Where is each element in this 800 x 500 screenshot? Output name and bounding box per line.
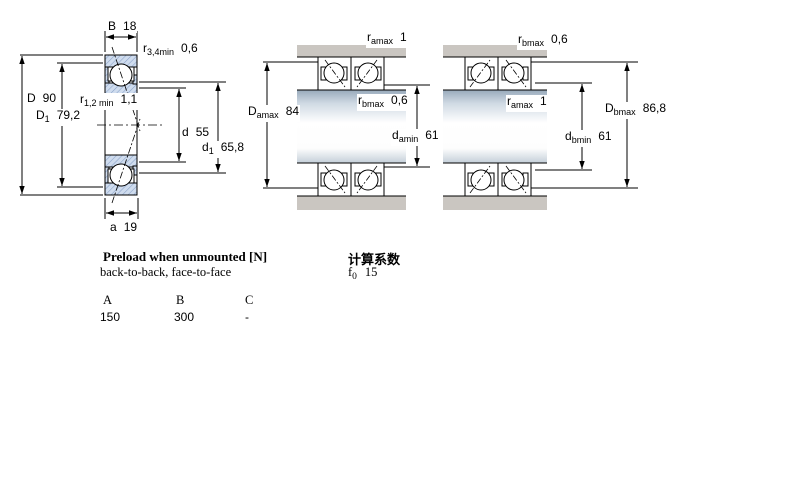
dim-label-d: d55 [181, 126, 210, 139]
dim-label-damin: damin61 [391, 129, 440, 146]
dim-label-D: D90 [26, 92, 57, 105]
dim-label-a: a19 [109, 221, 138, 234]
preload-value-c: - [245, 310, 249, 324]
dim-label-rbmax-b: rbmax0,6 [517, 33, 569, 50]
preload-value-b: 300 [174, 310, 194, 324]
dim-label-r12: r1,2 min1,1 [79, 93, 138, 110]
dim-label-Dbmax: Dbmax86,8 [604, 102, 667, 119]
dim-label-ramax-a: ramax1 [366, 31, 408, 48]
dim-label-ramax-b: ramax1 [506, 95, 548, 112]
preload-col-c-header: C [245, 293, 253, 308]
dim-label-rbmax-a: rbmax0,6 [357, 94, 409, 111]
extension-lines-right [531, 62, 638, 188]
preload-section-title: Preload when unmounted [N] [103, 249, 267, 265]
housing-block-bottom-b [443, 196, 547, 210]
mounted-pair-drawing-a [263, 45, 430, 210]
mounted-pair-drawing-b [443, 45, 638, 210]
preload-value-a: 150 [100, 310, 120, 324]
dim-label-D1: D179,2 [35, 109, 81, 126]
bearing-datasheet-figure: B18 r3,4min0,6 D90 D179,2 r1,2 min1,1 d5… [0, 0, 800, 500]
preload-col-b-header: B [176, 293, 184, 308]
dim-label-dbmin: dbmin61 [564, 130, 613, 147]
preload-col-a-header: A [103, 293, 112, 308]
dim-label-d1: d165,8 [201, 141, 245, 158]
preload-arrangement-text: back-to-back, face-to-face [100, 265, 231, 280]
dimension-lines-right [582, 63, 627, 187]
f0-factor: f015 [348, 265, 377, 282]
housing-block-bottom [297, 196, 406, 210]
dim-label-Damax: Damax84 [247, 105, 300, 122]
dim-label-r34: r3,4min0,6 [142, 42, 199, 59]
dim-label-B: B18 [107, 20, 137, 33]
